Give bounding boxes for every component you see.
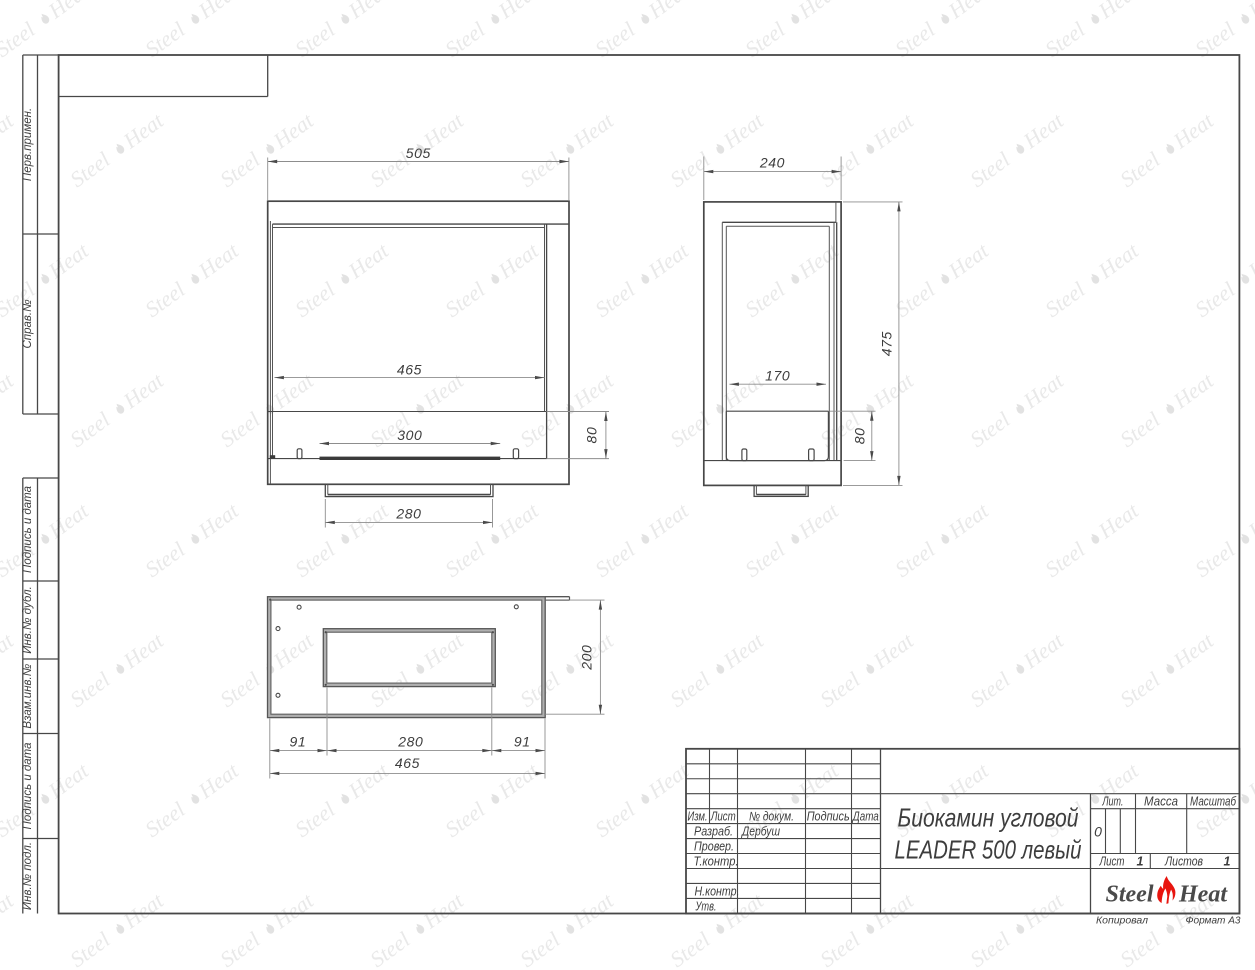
svg-text:Подпись: Подпись [807,810,850,824]
svg-text:280: 280 [395,505,421,521]
svg-text:Разраб.: Разраб. [694,825,733,839]
svg-text:Н.контр.: Н.контр. [695,884,740,898]
svg-text:Подпись и дата: Подпись и дата [22,743,34,830]
svg-text:Изм.: Изм. [688,810,708,824]
svg-text:Масса: Масса [1144,795,1178,809]
svg-text:Подпись и дата: Подпись и дата [22,486,34,573]
svg-text:№ докум.: № докум. [749,810,794,824]
svg-text:Утв.: Утв. [695,899,717,913]
svg-text:80: 80 [851,428,867,445]
svg-text:Лит.: Лит. [1102,795,1124,809]
svg-text:91: 91 [290,733,307,749]
svg-text:Steel: Steel [1106,882,1154,908]
svg-text:Т.контр.: Т.контр. [694,855,739,869]
svg-text:Лист: Лист [1099,854,1125,868]
svg-text:Heat: Heat [1178,882,1228,908]
svg-text:Инв.№ дубл.: Инв.№ дубл. [22,586,34,654]
svg-text:465: 465 [395,755,420,771]
svg-text:Перв.примен.: Перв.примен. [22,108,34,181]
svg-text:200: 200 [579,645,595,671]
svg-text:240: 240 [759,154,785,170]
svg-text:Лист: Лист [710,810,736,824]
svg-text:1: 1 [1137,854,1144,868]
svg-text:Провер.: Провер. [694,840,734,854]
svg-text:Копировал: Копировал [1096,915,1148,927]
svg-text:505: 505 [406,145,431,161]
svg-text:465: 465 [397,361,422,377]
svg-text:Биокамин угловой: Биокамин угловой [898,803,1079,833]
svg-text:Дербуш: Дербуш [740,825,780,839]
svg-text:80: 80 [584,427,600,444]
svg-text:Взам.инв.№: Взам.инв.№ [22,663,34,728]
svg-text:Листов: Листов [1164,854,1203,868]
svg-text:91: 91 [514,733,531,749]
svg-text:0: 0 [1094,823,1102,839]
svg-text:LEADER 500 левый: LEADER 500 левый [895,835,1082,865]
svg-text:280: 280 [397,733,423,749]
svg-text:Масштаб: Масштаб [1190,795,1237,809]
svg-text:170: 170 [765,367,790,383]
svg-text:Формат A3: Формат A3 [1186,915,1241,927]
svg-text:Инв.№ подл.: Инв.№ подл. [22,842,34,910]
svg-text:1: 1 [1224,854,1231,868]
svg-text:475: 475 [878,331,894,356]
svg-text:300: 300 [397,427,422,443]
svg-text:Дата: Дата [851,810,879,824]
svg-text:Справ.№: Справ.№ [22,299,34,349]
